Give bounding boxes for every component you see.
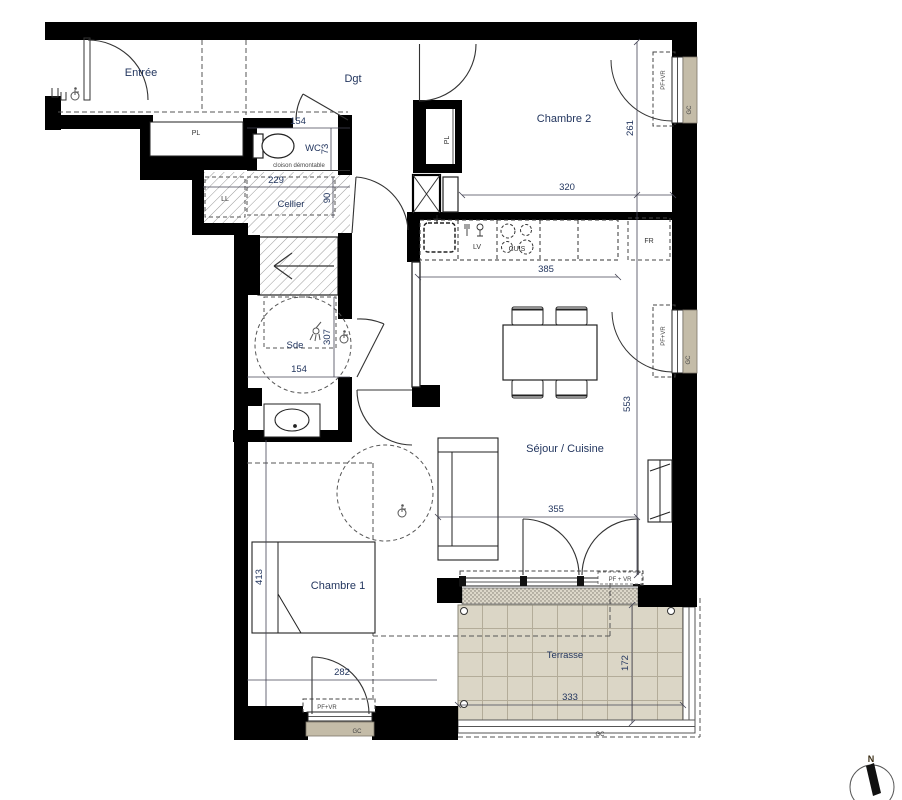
label-fridge-fr: FR — [644, 238, 653, 245]
window-sejour — [612, 305, 697, 377]
turning-circle-hall — [337, 445, 433, 541]
label-chambre1: Chambre 1 — [311, 580, 365, 592]
sofa — [438, 438, 498, 560]
window-chambre2 — [611, 52, 697, 126]
label-entree: Entrée — [125, 67, 157, 79]
label-removable-partition: cloison démontable — [273, 163, 325, 169]
north-label: N — [868, 754, 875, 764]
kitchen-counter — [420, 220, 618, 260]
door-hall-chambre1 — [357, 390, 412, 445]
label-cooktop-cuis: CUIS — [509, 246, 526, 253]
terrace-sill-strip — [462, 588, 638, 604]
label-closet-entree: PL — [192, 130, 201, 137]
dim-wc-height: 73 — [320, 144, 331, 155]
sde-washbasin — [264, 404, 320, 437]
radiator — [648, 460, 672, 522]
floorplan-apartment: Entrée Dgt WC Cellier Sde Chambre 2 Séjo… — [0, 0, 902, 800]
label-dishwasher-lv: LV — [473, 244, 481, 251]
wheelchair-icon-entree — [71, 87, 79, 100]
label-closet-chambre2: PL — [444, 136, 451, 145]
label-washer-ll: LL — [221, 196, 229, 203]
dim-chambre1-width: 282 — [334, 667, 350, 678]
dim-sde-width: 154 — [291, 364, 307, 375]
label-window-pfvr-chambre1: PF+VR — [317, 705, 337, 711]
label-gc-sejour: GC — [686, 355, 692, 365]
label-sejour: Séjour / Cuisine — [526, 443, 604, 455]
dim-cellier-width: 229 — [268, 175, 284, 186]
kitchen-sink — [424, 215, 455, 252]
dim-chambre2-width: 320 — [559, 182, 575, 193]
french-doors-terrace — [523, 519, 638, 575]
label-sde: Sde — [287, 340, 304, 351]
dim-sde-height: 307 — [322, 329, 333, 345]
door-cellier — [352, 177, 408, 233]
dining-table — [503, 307, 597, 398]
closet-entree — [150, 122, 243, 156]
label-terrasse: Terrasse — [547, 650, 583, 661]
dim-terrasse-width: 333 — [562, 692, 578, 703]
floorplan-drawing: Entrée Dgt WC Cellier Sde Chambre 2 Séjo… — [0, 0, 902, 800]
label-wc: WC — [305, 143, 321, 154]
dim-sejour-height: 553 — [622, 396, 633, 412]
label-cellier: Cellier — [278, 199, 305, 210]
window-chambre1 — [303, 699, 375, 736]
dishwasher-glyphs — [465, 224, 483, 236]
dim-chambre1-height: 413 — [254, 569, 265, 585]
dim-sejour-width: 355 — [548, 504, 564, 515]
label-window-pfvr-chambre2: PF+VR — [661, 70, 667, 90]
wc-toilet — [253, 134, 294, 158]
wheelchair-icon-hall — [398, 504, 406, 517]
thin-partition — [412, 262, 420, 387]
label-chambre2: Chambre 2 — [537, 113, 591, 125]
north-arrow: N — [850, 754, 894, 800]
dim-terrasse-height: 172 — [620, 655, 631, 671]
dim-cellier-height: 90 — [322, 193, 333, 204]
label-gc-chambre1: GC — [353, 729, 363, 735]
dim-cuisine-width: 385 — [538, 264, 554, 275]
door-chambre2 — [419, 44, 476, 101]
duct-arrow-box — [258, 237, 338, 295]
sde-shower-head-icon — [310, 322, 321, 341]
label-bay-pfvr: PF + VR — [609, 577, 633, 583]
door-sde — [357, 319, 384, 377]
dim-chambre2-height: 261 — [625, 120, 636, 136]
label-window-pfvr-sejour: PF+VR — [661, 326, 667, 346]
wheelchair-icon-sde — [340, 330, 348, 343]
label-gc-terrace: GC — [596, 732, 606, 738]
label-gc-chambre2: GC — [687, 105, 693, 115]
dim-wc-width: 154 — [290, 116, 306, 127]
label-dgt: Dgt — [344, 73, 361, 85]
technical-duct-box — [413, 175, 458, 213]
